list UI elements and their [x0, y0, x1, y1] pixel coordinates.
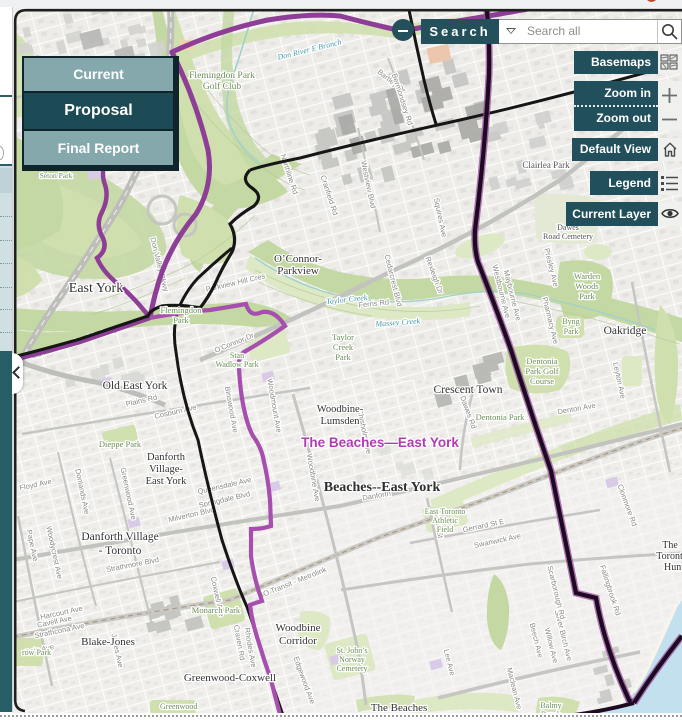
svg-text:Dentonia: Dentonia — [526, 356, 557, 366]
svg-text:Warden: Warden — [574, 271, 601, 281]
svg-text:The Beaches—East York: The Beaches—East York — [301, 435, 459, 450]
svg-text:O’Connor-: O’Connor- — [274, 253, 322, 265]
svg-text:East Toronto: East Toronto — [425, 507, 466, 516]
svg-text:Dieppe Park: Dieppe Park — [99, 439, 142, 449]
svg-text:Field: Field — [437, 525, 453, 534]
svg-text:Oakridge: Oakridge — [604, 325, 647, 337]
svg-text:Park: Park — [173, 315, 189, 325]
svg-text:Danforth: Danforth — [147, 452, 186, 463]
svg-text:Monarch Park: Monarch Park — [192, 605, 241, 615]
svg-text:Parkview: Parkview — [277, 265, 319, 277]
svg-text:Lumsden: Lumsden — [320, 416, 360, 427]
svg-text:Woodbine: Woodbine — [276, 622, 321, 634]
svg-text:Byng: Byng — [562, 317, 579, 326]
svg-text:- Toronto: - Toronto — [99, 545, 142, 557]
svg-text:Greenwood-Coxwell: Greenwood-Coxwell — [184, 672, 276, 684]
svg-text:Park: Park — [579, 291, 595, 301]
svg-text:East York: East York — [69, 281, 123, 296]
svg-text:Greenwood: Greenwood — [160, 702, 197, 711]
svg-text:Village-: Village- — [149, 464, 183, 475]
svg-text:Beaches--East York: Beaches--East York — [324, 480, 441, 495]
svg-text:Road Cemetery: Road Cemetery — [543, 232, 593, 241]
svg-text:Athletic: Athletic — [432, 516, 458, 525]
svg-text:Hunt: Hunt — [664, 562, 682, 573]
svg-text:Danforth Village: Danforth Village — [81, 531, 158, 543]
svg-text:Taylor: Taylor — [332, 332, 354, 342]
svg-text:Stan: Stan — [230, 351, 244, 360]
svg-text:Park: Park — [564, 327, 579, 336]
svg-text:Seton Park: Seton Park — [40, 171, 73, 180]
svg-text:Dentonia Park: Dentonia Park — [476, 412, 526, 422]
svg-text:Clairlea Park: Clairlea Park — [522, 160, 570, 170]
svg-text:Creek: Creek — [333, 342, 354, 352]
svg-text:Course: Course — [530, 376, 554, 386]
svg-text:Toronto: Toronto — [656, 551, 682, 562]
svg-text:Flemingdon Park: Flemingdon Park — [189, 71, 255, 81]
svg-text:Park: Park — [335, 352, 351, 362]
svg-text:Corridor: Corridor — [279, 635, 317, 647]
svg-text:Balmy: Balmy — [540, 701, 561, 710]
svg-text:Woodbine-: Woodbine- — [317, 404, 364, 415]
svg-text:Blake-Jones: Blake-Jones — [81, 636, 135, 648]
svg-text:Golf Club: Golf Club — [203, 81, 242, 92]
svg-text:row Park: row Park — [22, 648, 51, 657]
svg-text:East York: East York — [146, 476, 188, 487]
svg-text:Wadlow Park: Wadlow Park — [215, 360, 258, 369]
svg-text:The: The — [662, 540, 678, 551]
svg-text:Woods: Woods — [575, 281, 598, 291]
svg-text:Norway: Norway — [339, 655, 365, 664]
svg-text:Cemetery: Cemetery — [336, 664, 367, 673]
svg-text:St. John’s: St. John’s — [336, 646, 367, 655]
svg-text:Park Golf: Park Golf — [525, 366, 558, 376]
svg-text:Old East York: Old East York — [103, 380, 168, 392]
svg-text:Crescent Town: Crescent Town — [434, 384, 503, 396]
svg-text:Flemingdon: Flemingdon — [160, 305, 202, 315]
